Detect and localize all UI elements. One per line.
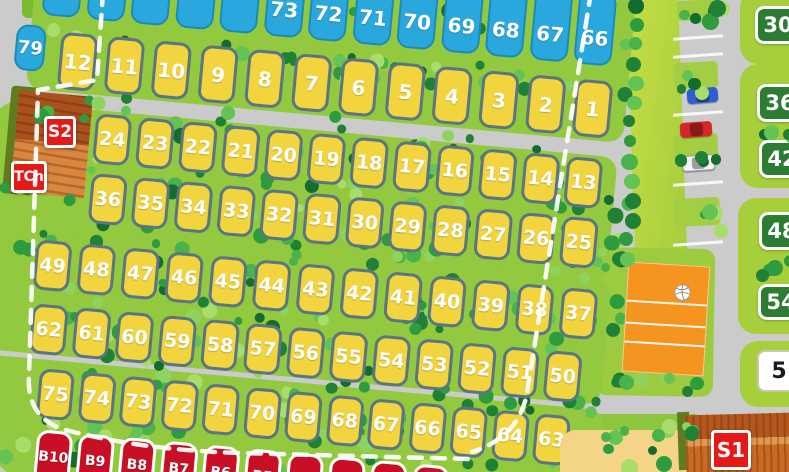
tree-icon — [664, 373, 675, 384]
tree-icon — [690, 377, 703, 390]
label-s1: S1 — [711, 430, 751, 470]
tree-icon — [688, 78, 701, 91]
tree-icon — [626, 57, 641, 72]
tree-icon — [621, 154, 637, 170]
tree-icon — [690, 13, 700, 23]
tree-icon — [629, 37, 642, 50]
tree-icon — [656, 456, 672, 472]
tree-icon — [623, 115, 635, 127]
tree-icon — [714, 224, 728, 238]
campsite-map: 7372717069686766121110987654321242322212… — [0, 0, 789, 472]
volleyball-icon — [674, 284, 691, 301]
tree-icon — [619, 375, 634, 390]
tree-icon — [628, 76, 643, 91]
tree-icon — [624, 174, 639, 189]
tree-icon — [702, 204, 718, 220]
tree-icon — [784, 255, 789, 267]
detail-layer: 30 36 42 48 54 5 S2 TCh S1 — [0, 0, 789, 472]
tree-icon — [677, 84, 686, 93]
tree-icon — [662, 419, 677, 434]
tree-icon — [767, 260, 783, 276]
tree-icon — [619, 232, 633, 246]
tree-icon — [620, 426, 630, 436]
tree-icon — [783, 129, 789, 139]
parking-stall-line — [673, 110, 723, 116]
tree-icon — [756, 269, 769, 282]
plot-tile-54[interactable]: 54 — [758, 284, 789, 320]
tree-icon — [620, 252, 635, 267]
tree-icon — [601, 432, 611, 442]
plot-tile-30[interactable]: 30 — [755, 6, 789, 44]
tree-icon — [630, 18, 644, 32]
tree-icon — [711, 154, 722, 165]
tree-icon — [675, 154, 687, 166]
plot-tile-5[interactable]: 5 — [757, 350, 789, 392]
parking-stall-line — [673, 34, 723, 40]
tree-icon — [627, 96, 641, 110]
tree-icon — [635, 373, 649, 387]
tree-icon — [625, 213, 642, 230]
tree-icon — [628, 0, 644, 14]
tree-icon — [679, 10, 689, 20]
plot-tile-48[interactable]: 48 — [759, 212, 789, 250]
parking-stall-line — [673, 52, 723, 58]
tree-icon — [625, 193, 641, 209]
plot-tile-36[interactable]: 36 — [757, 84, 789, 122]
tree-icon — [601, 263, 610, 272]
parking-stall-line — [673, 240, 723, 246]
plot-tile-42[interactable]: 42 — [759, 140, 789, 178]
tree-icon — [648, 446, 657, 455]
tree-icon — [685, 426, 699, 440]
volleyball-court — [622, 262, 711, 377]
tree-icon — [709, 0, 726, 17]
tree-icon — [695, 151, 708, 164]
label-tch: TCh — [11, 161, 47, 193]
car-red — [680, 121, 713, 138]
tree-icon — [624, 135, 636, 147]
label-s2: S2 — [44, 116, 76, 148]
tree-icon — [764, 125, 779, 140]
parking-stall-line — [673, 180, 723, 186]
tree-icon — [621, 459, 638, 472]
